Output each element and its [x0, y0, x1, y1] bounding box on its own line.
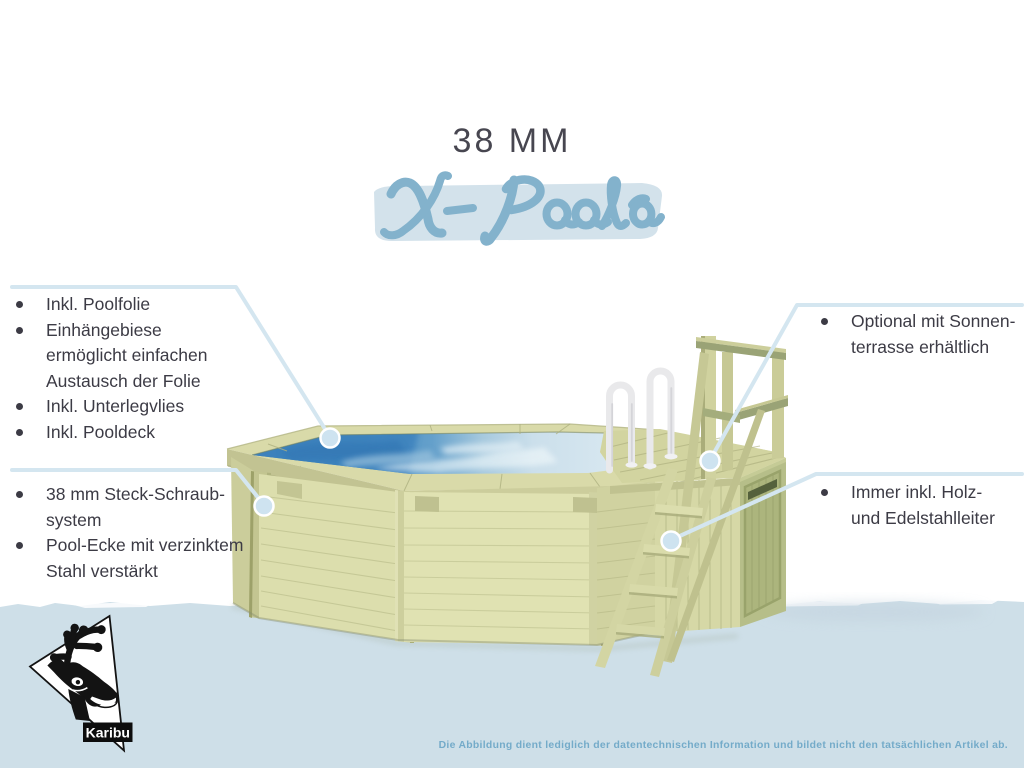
svg-text:Karibu: Karibu [86, 725, 130, 741]
